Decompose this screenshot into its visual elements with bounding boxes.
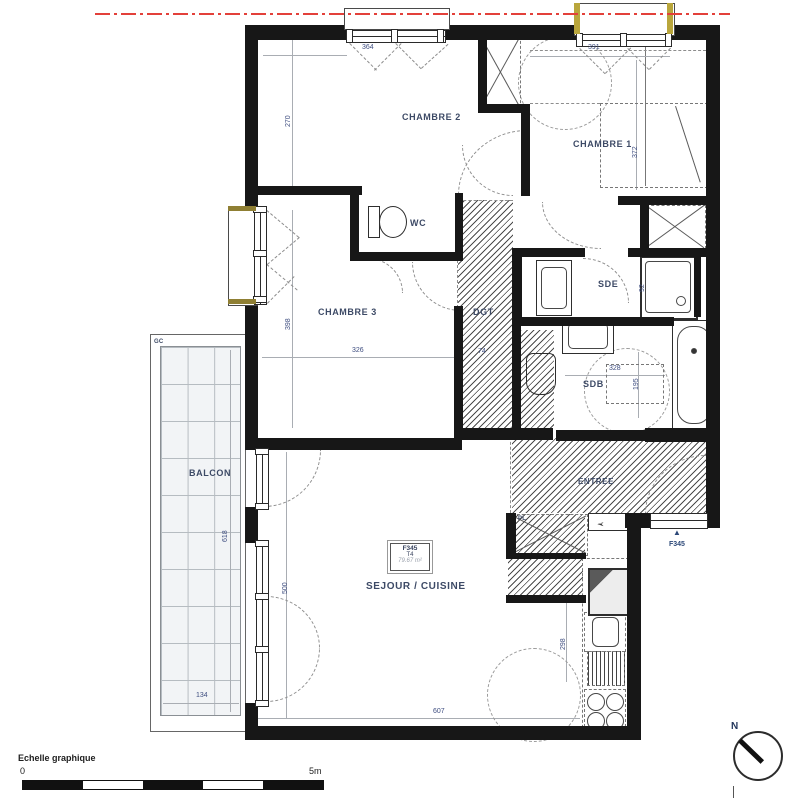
balcony-door-b — [256, 542, 269, 705]
entree-dashed-edge — [510, 437, 511, 513]
scale-start: 0 — [20, 766, 25, 776]
room-label-sdb: SDB — [583, 379, 604, 389]
door-arc-chambre3 — [412, 262, 461, 311]
dim-line — [262, 357, 458, 358]
door-arc-chambre1 — [542, 202, 601, 249]
dim-line — [230, 350, 231, 712]
sdb-sink-basin — [568, 323, 608, 349]
wall-segment — [445, 25, 578, 40]
window-hinge — [576, 33, 583, 47]
room-label-sde: SDE — [598, 279, 618, 289]
dim-sde-h: 92 — [639, 284, 646, 292]
room-label-gc: GC — [154, 339, 163, 345]
bathtub-drain — [691, 348, 697, 354]
window-hinge — [255, 593, 269, 600]
entrance-unit-label: F345 — [669, 541, 685, 548]
door-arc-balcony-a — [264, 450, 321, 507]
wall-segment — [512, 248, 585, 257]
dim-sejour-h: 500 — [282, 582, 289, 594]
wall-segment — [512, 255, 522, 325]
window-swing-line — [395, 43, 421, 69]
window-trim — [228, 206, 256, 211]
dim-line — [263, 55, 347, 56]
wall-segment — [350, 252, 463, 261]
hob-burner — [587, 693, 605, 711]
window-hinge — [391, 29, 398, 43]
dim-kitchen-h: 298 — [560, 638, 567, 650]
hatch-hall-strip — [508, 556, 583, 595]
door-arc-balcony-b2 — [266, 648, 320, 702]
scale-bar — [22, 780, 324, 790]
scale-segment — [263, 781, 323, 789]
hob-burner — [606, 693, 624, 711]
wall-segment — [556, 430, 648, 441]
dim-ch1-h: 372 — [632, 146, 639, 158]
dim-balcon-h: 618 — [222, 530, 229, 542]
wall-segment — [618, 196, 706, 205]
window-swing-line — [421, 44, 448, 69]
wall-segment — [512, 325, 521, 437]
wall-segment — [245, 703, 258, 740]
kitchen-drainer — [587, 651, 625, 686]
window-trim — [228, 299, 256, 304]
wall-segment — [694, 253, 701, 317]
window-swing-line — [267, 276, 295, 304]
toilet-sdb — [526, 353, 556, 395]
dim-ch3-h: 398 — [285, 318, 292, 330]
wall-segment — [478, 25, 487, 112]
window-trim — [667, 3, 673, 34]
wall-segment — [455, 428, 553, 440]
scale-segment — [23, 781, 83, 789]
dim-ch3-w: 326 — [352, 347, 364, 354]
window-hinge — [346, 29, 353, 43]
guide-line — [530, 103, 600, 104]
window-swing-line — [374, 43, 402, 71]
room-label-sejour: SEJOUR / CUISINE — [366, 581, 466, 592]
kitchen-fridge — [588, 568, 630, 616]
room-label-dgt: DGT — [473, 307, 494, 317]
window-hinge — [253, 250, 267, 257]
compass-tick — [733, 786, 734, 798]
window-sill-chambre2 — [344, 8, 450, 30]
window-hinge — [255, 646, 269, 653]
wall-segment — [245, 303, 258, 450]
window-swing-line — [649, 48, 671, 70]
window-hinge — [255, 448, 269, 455]
sde-sink-basin — [541, 267, 567, 309]
wall-segment — [245, 25, 258, 208]
dim-sdb-h: 195 — [633, 378, 640, 390]
wall-segment — [245, 25, 348, 40]
toilet-bowl-wc — [379, 206, 407, 238]
wall-segment — [706, 513, 720, 528]
dgt-dashed-edge — [458, 200, 513, 201]
door-arc-balcony-b1 — [266, 596, 320, 648]
wall-segment — [350, 195, 359, 255]
dim-ch2-h: 270 — [285, 115, 292, 127]
wall-segment — [627, 513, 641, 740]
entrance-threshold — [650, 513, 708, 529]
wall-segment — [506, 513, 516, 558]
dim-dgt-w: 74 — [478, 348, 486, 355]
window-hinge — [255, 540, 269, 547]
entry-cabinet: ➢ — [588, 513, 628, 531]
balcony-door-a — [256, 450, 269, 509]
dim-ch2-w: 364 — [362, 44, 374, 51]
kitchen-sink-basin — [592, 617, 619, 647]
window-trim — [574, 3, 580, 34]
dim-line — [163, 703, 239, 704]
room-label-pl: PL — [518, 516, 526, 522]
room-label-chambre3: CHAMBRE 3 — [318, 307, 377, 317]
window-swing-line — [267, 237, 300, 265]
dim-sdb-w: 328 — [609, 365, 621, 372]
north-label: N — [731, 721, 738, 732]
window-hinge — [255, 700, 269, 707]
scale-segment — [203, 781, 263, 789]
wall-segment — [645, 428, 712, 442]
wall-segment — [455, 193, 463, 258]
scale-end: 5m — [309, 766, 322, 776]
guide-line — [530, 50, 706, 51]
dim-balcon-w: 134 — [196, 692, 208, 699]
wall-segment — [640, 196, 649, 252]
wall-segment — [512, 317, 674, 326]
wall-segment — [506, 553, 586, 559]
window-swing-line — [266, 210, 299, 238]
boundary-dashdot-line — [95, 13, 730, 15]
dim-sejour-w: 607 — [433, 708, 445, 715]
door-arc-wc — [368, 258, 403, 293]
unit-ref: F345 — [391, 545, 429, 552]
room-label-entree: ENTREE — [578, 477, 614, 486]
wall-segment — [245, 726, 641, 740]
wall-segment — [245, 438, 462, 450]
room-label-chambre2: CHAMBRE 2 — [402, 112, 461, 122]
window-hinge — [665, 33, 672, 47]
shower-drain — [676, 296, 686, 306]
entrance-triangle-icon: ▲ — [673, 528, 681, 537]
room-label-chambre1: CHAMBRE 1 — [573, 139, 632, 149]
room-label-wc: WC — [410, 218, 426, 228]
shower-inner — [645, 261, 691, 313]
window-hinge — [620, 33, 627, 47]
scale-segment — [143, 781, 203, 789]
window-sill-chambre1 — [574, 3, 675, 36]
window-hinge — [437, 29, 444, 43]
floor-plan: ➢ 364 270 391 372 326 398 92 328 19 — [0, 0, 797, 800]
wall-segment — [521, 104, 530, 196]
wall-segment — [506, 595, 586, 603]
wall-segment — [258, 186, 362, 195]
unit-area: 79.67 m² — [391, 558, 429, 564]
dim-ch1-w: 391 — [588, 44, 600, 51]
entry-arrow-icon: ➢ — [597, 517, 605, 532]
scale-segment — [83, 781, 143, 789]
room-label-balcon: BALCON — [189, 468, 231, 478]
wall-segment — [454, 306, 463, 438]
scale-title: Echelle graphique — [18, 753, 96, 763]
wall-segment — [245, 507, 258, 543]
unit-tag-box: F345 T4 79.67 m² — [390, 543, 430, 571]
window-hinge — [255, 503, 269, 510]
